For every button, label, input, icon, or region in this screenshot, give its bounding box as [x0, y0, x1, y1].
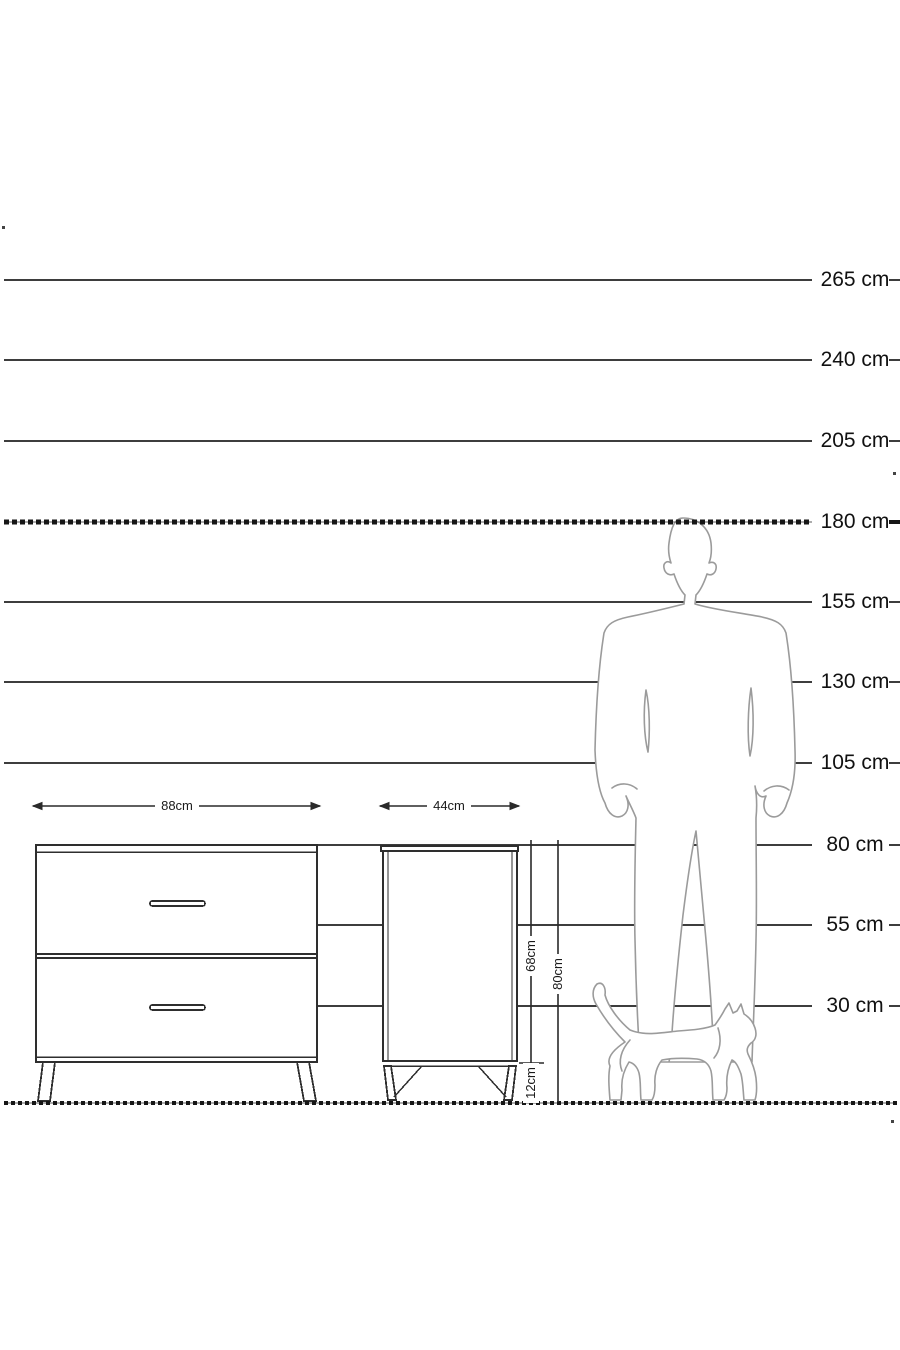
dresser-leg-right — [297, 1062, 316, 1101]
dresser-width-arrow-right — [311, 803, 320, 810]
furniture-dimension-diagram: 265 cm 240 cm 205 cm 180 cm 155 cm 130 c… — [0, 0, 900, 1350]
nightstand-leg-right — [504, 1066, 516, 1100]
man-jacket-fold-right — [748, 688, 753, 756]
man-silhouette — [595, 518, 795, 1062]
speck-top-left — [2, 226, 5, 229]
dresser-width-arrow-left — [33, 803, 42, 810]
nightstand-total-height-label: 80cm — [550, 954, 566, 994]
speck-right-mid — [893, 472, 896, 475]
height-label-240: 240 cm — [815, 347, 895, 373]
nightstand-leg-right-brace — [479, 1067, 506, 1097]
height-label-105: 105 cm — [815, 750, 895, 776]
nightstand-leg-left-brace — [394, 1067, 421, 1097]
dresser-handle-bottom — [150, 1005, 205, 1010]
height-label-130: 130 cm — [815, 669, 895, 695]
nightstand-leg-left — [384, 1066, 396, 1100]
speck-bottom-right — [891, 1120, 894, 1123]
nightstand-width-arrow-right — [510, 803, 519, 810]
nightstand-drawing — [381, 846, 518, 1100]
nightstand-width-arrow-left — [380, 803, 389, 810]
dresser-handle-top — [150, 901, 205, 906]
height-label-55: 55 cm — [815, 912, 895, 938]
label-edge-ticks — [889, 280, 900, 1006]
nightstand-leg-height-label: 12cm — [523, 1063, 539, 1103]
dresser-leg-left — [38, 1062, 55, 1101]
diagram-canvas — [0, 0, 900, 1350]
nightstand-body — [383, 851, 517, 1061]
nightstand-body-height-label: 68cm — [523, 936, 539, 976]
height-label-265: 265 cm — [815, 267, 895, 293]
height-label-80: 80 cm — [815, 832, 895, 858]
height-label-180: 180 cm — [815, 509, 895, 535]
nightstand-top-board — [381, 846, 518, 851]
dresser-width-label: 88cm — [155, 798, 199, 814]
nightstand-width-label: 44cm — [427, 798, 471, 814]
height-label-30: 30 cm — [815, 993, 895, 1019]
height-label-205: 205 cm — [815, 428, 895, 454]
dresser-drawing — [36, 845, 317, 1101]
height-label-155: 155 cm — [815, 589, 895, 615]
